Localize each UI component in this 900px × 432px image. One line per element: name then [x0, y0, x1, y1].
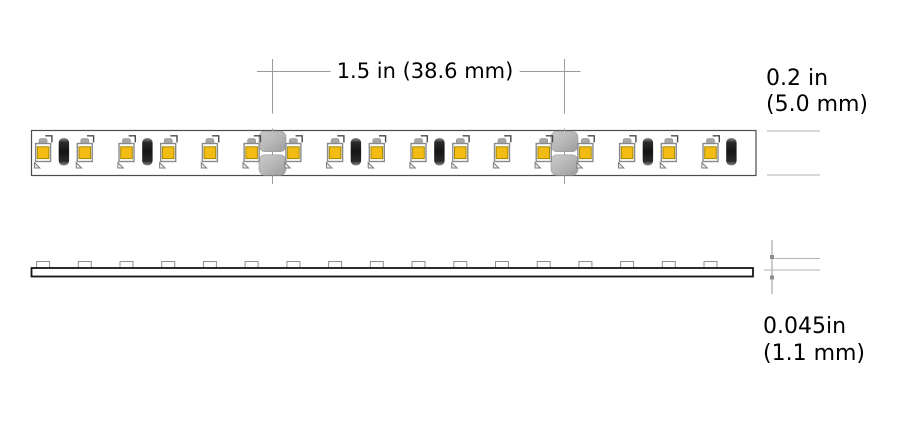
strip-width-inches: 0.2 in	[766, 66, 868, 92]
led-chip	[621, 147, 633, 159]
resistor	[59, 138, 69, 166]
resistor	[434, 138, 444, 166]
led-chip	[455, 147, 467, 159]
led-chip	[246, 147, 258, 159]
thickness-arrow-top	[770, 255, 774, 259]
thickness-dimension-lines	[764, 240, 820, 294]
thickness-arrow-bottom	[770, 276, 774, 280]
led-chip	[79, 147, 91, 159]
led-strip-dimension-diagram: 1.5 in (38.6 mm) 0.2 in (5.0 mm) 0.045in…	[0, 0, 900, 432]
led-chip	[538, 147, 550, 159]
led-chip	[329, 147, 341, 159]
led-chip	[663, 147, 675, 159]
led-chip	[371, 147, 383, 159]
led-chip	[37, 147, 49, 159]
resistor	[726, 138, 736, 166]
led-chip	[580, 147, 592, 159]
led-chip	[413, 147, 425, 159]
solder-pad	[551, 155, 578, 176]
pcb-side-profile	[32, 268, 754, 277]
width-dimension-lines	[767, 131, 820, 175]
led-chip	[204, 147, 216, 159]
resistor	[351, 138, 361, 166]
strip-thickness-label: 0.045in (1.1 mm)	[763, 313, 865, 367]
solder-pad	[259, 155, 286, 176]
led-chip	[288, 147, 300, 159]
solder-pad	[551, 131, 578, 152]
strip-width-label: 0.2 in (5.0 mm)	[766, 66, 868, 118]
strip-width-mm: (5.0 mm)	[766, 92, 868, 118]
resistor	[142, 138, 152, 166]
resistor	[643, 138, 653, 166]
led-chip	[705, 147, 717, 159]
pitch-dimension-label: 1.5 in (38.6 mm)	[331, 59, 520, 83]
led-chip	[496, 147, 508, 159]
led-chip	[162, 147, 174, 159]
strip-thickness-inches: 0.045in	[763, 313, 865, 340]
solder-pad	[259, 131, 286, 152]
strip-thickness-mm: (1.1 mm)	[763, 340, 865, 367]
led-chip	[121, 147, 133, 159]
